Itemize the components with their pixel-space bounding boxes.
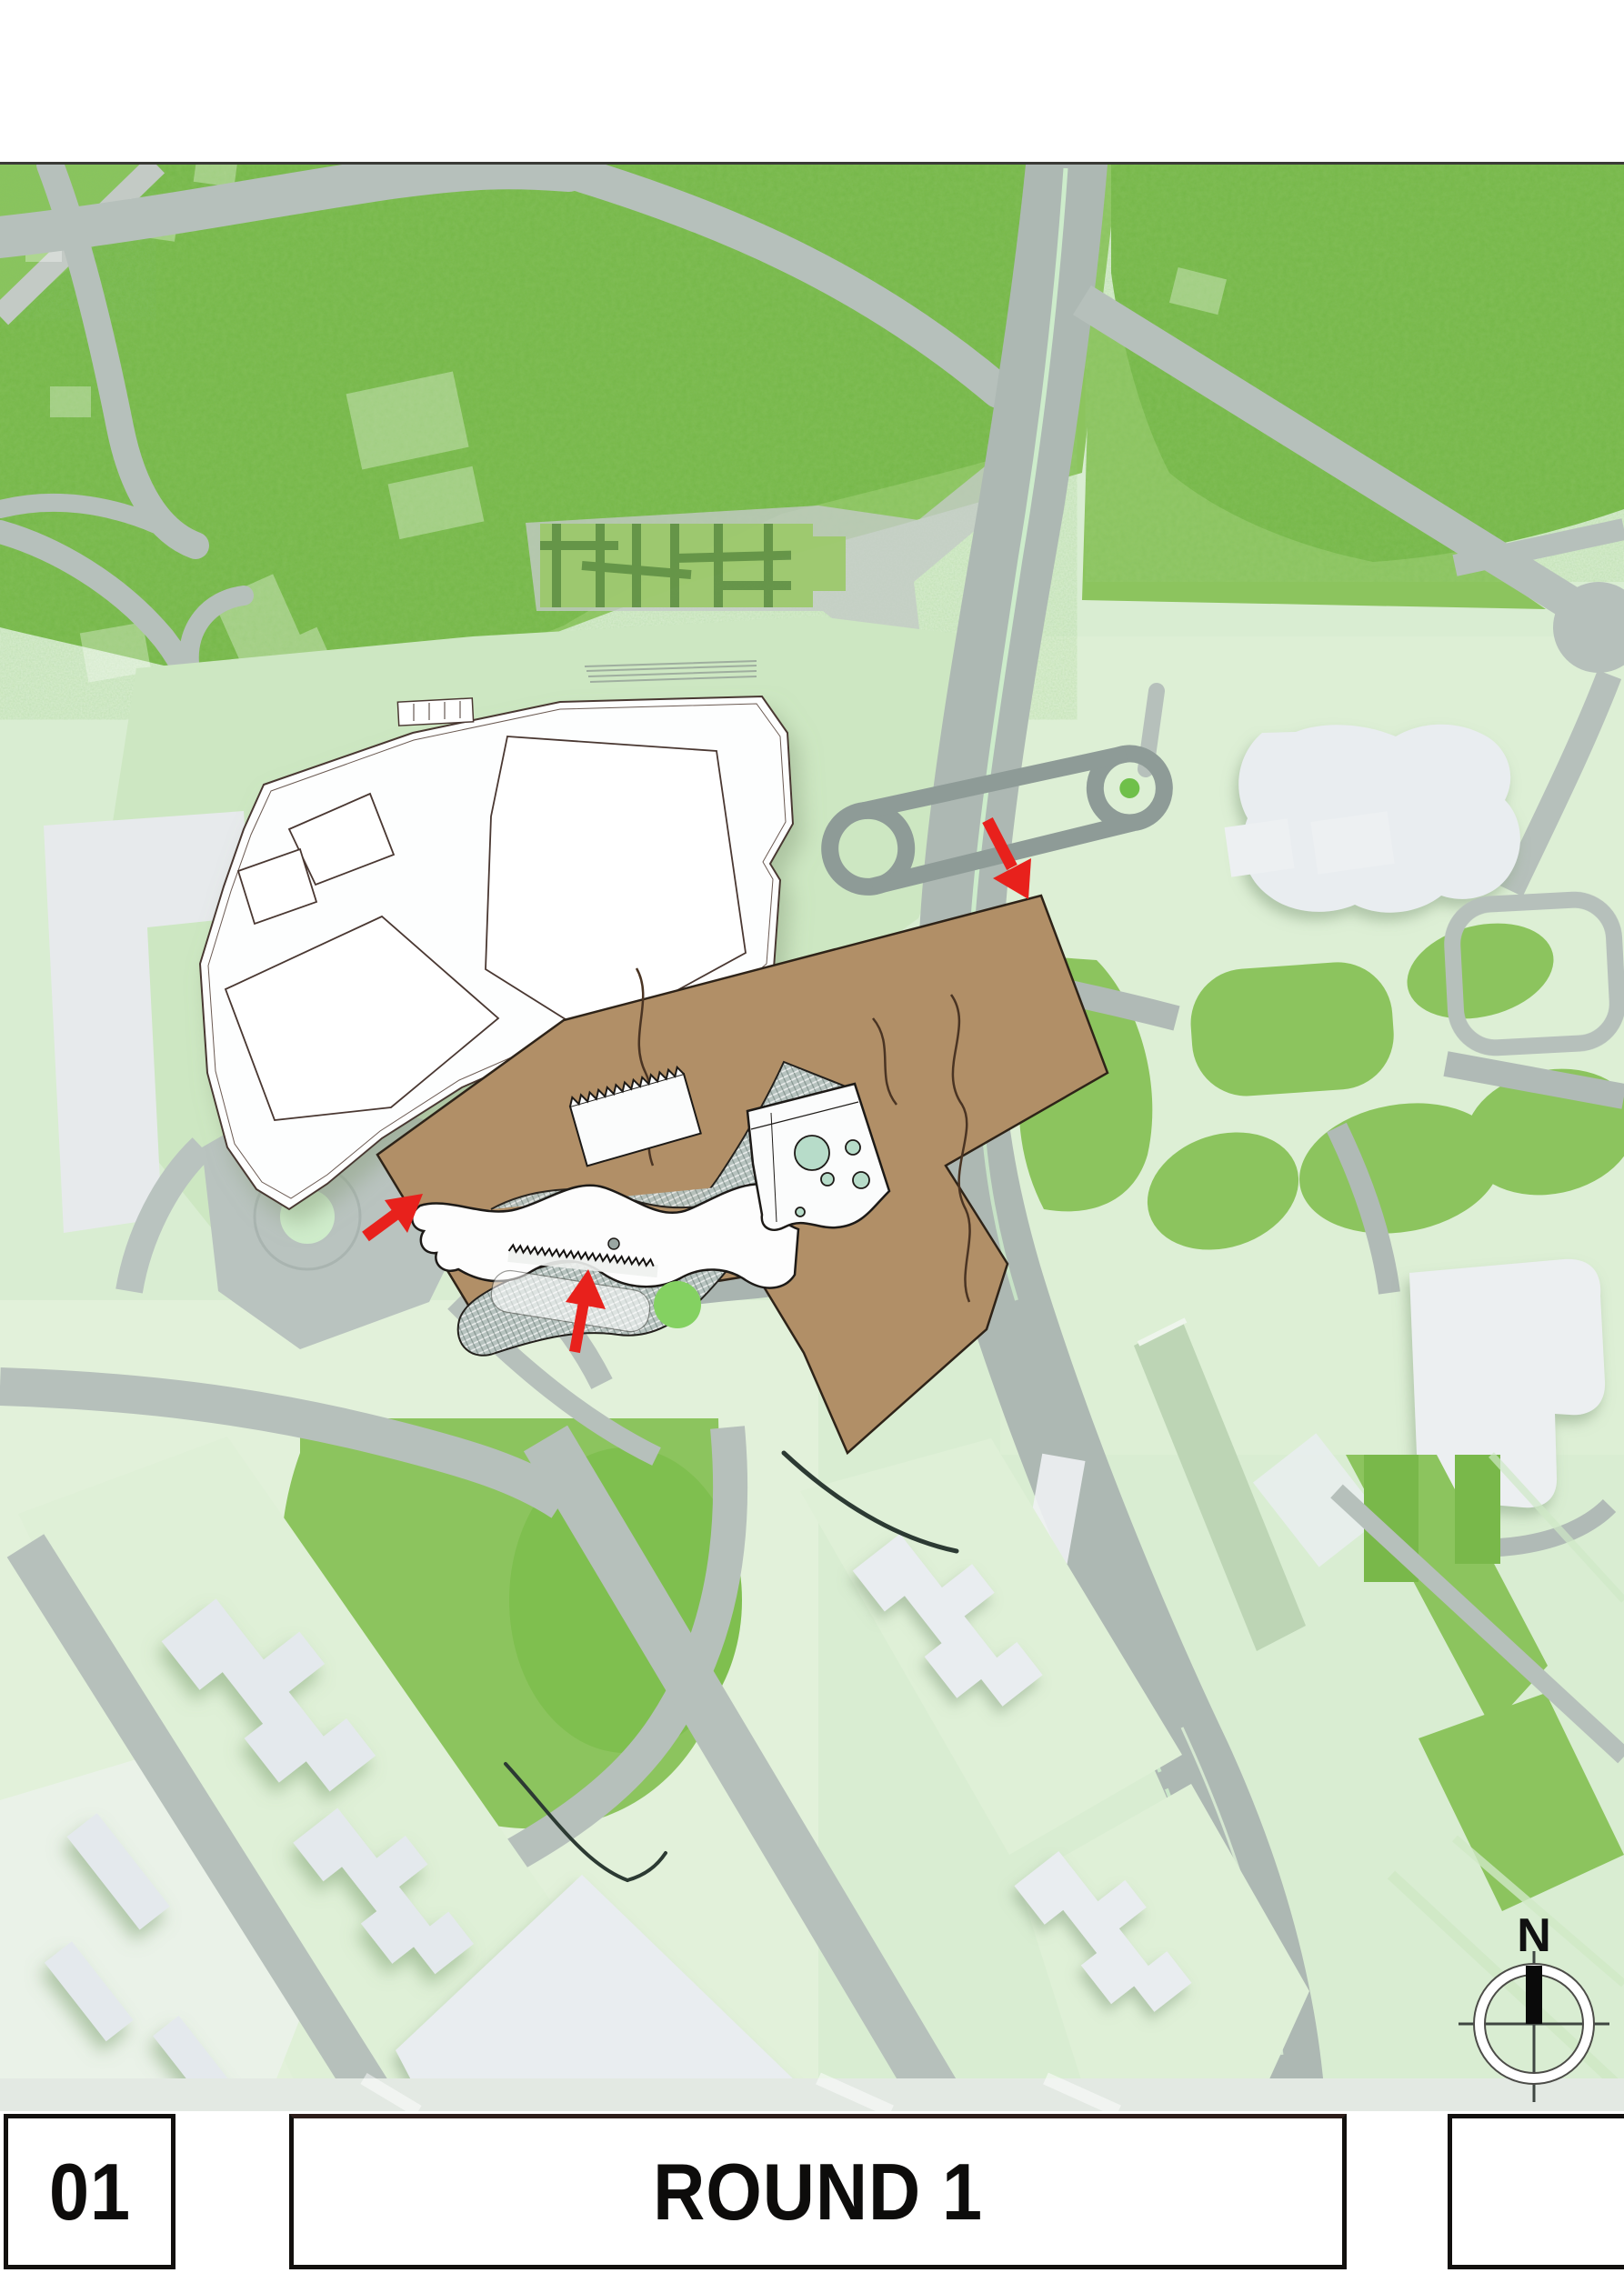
sheet-title-box: ROUND 1 [289, 2114, 1347, 2269]
bottom-strip [0, 2078, 1624, 2111]
sheet-number-box: 01 [4, 2114, 175, 2269]
sheet-number: 01 [49, 2152, 131, 2232]
sheet-title: ROUND 1 [653, 2152, 983, 2232]
mall-north-annex [397, 698, 473, 726]
compass-needle [1526, 1966, 1542, 2024]
title-block: 01 ROUND 1 [0, 2111, 1624, 2273]
notes-box [1448, 2114, 1624, 2269]
north-label: N [1517, 1909, 1551, 1962]
site-plan-map: N [0, 165, 1624, 2111]
sheet-top-margin [0, 0, 1624, 165]
green-court-dot [654, 1281, 701, 1328]
plan-sheet: N 01 ROUND 1 [0, 0, 1624, 2273]
